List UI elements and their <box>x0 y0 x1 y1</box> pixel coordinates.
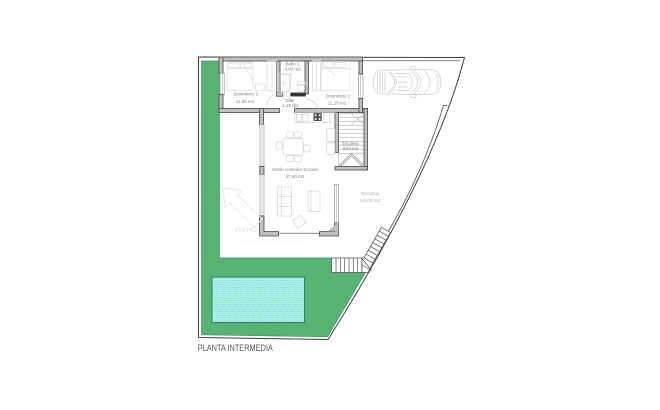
svg-text:Dormitorio 1: Dormitorio 1 <box>326 93 351 98</box>
svg-text:Dormitorio 2: Dormitorio 2 <box>234 92 259 97</box>
svg-text:37,60 m2: 37,60 m2 <box>286 174 305 179</box>
svg-text:1,25 m2: 1,25 m2 <box>282 103 299 108</box>
svg-text:Escalera: Escalera <box>342 141 359 146</box>
svg-text:93,00 m2: 93,00 m2 <box>360 198 381 204</box>
svg-text:4,00 m2: 4,00 m2 <box>284 66 301 71</box>
svg-text:11,15 m2: 11,15 m2 <box>328 100 347 105</box>
svg-text:PLANTA INTERMEDIA: PLANTA INTERMEDIA <box>198 343 274 353</box>
svg-text:VISTAS: VISTAS <box>235 227 259 233</box>
svg-text:11,50 m2: 11,50 m2 <box>236 99 255 104</box>
svg-text:6,50 m2: 6,50 m2 <box>343 146 359 151</box>
svg-text:Terrazas: Terrazas <box>361 191 380 197</box>
svg-text:Salón comedor-Cocina: Salón comedor-Cocina <box>272 167 318 172</box>
